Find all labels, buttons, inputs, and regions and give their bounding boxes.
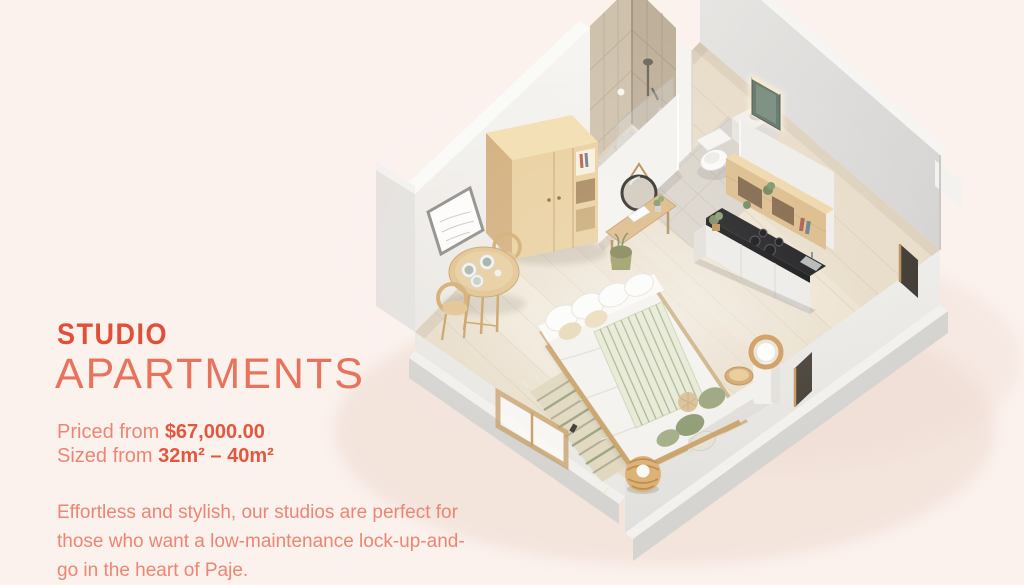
page-subtitle: APARTMENTS (55, 353, 497, 396)
page-title: STUDIO (57, 320, 497, 349)
price-value: $67,000.00 (165, 421, 265, 443)
facts: Priced from $67,000.00 Sized from 32m² –… (57, 420, 497, 468)
description: Effortless and stylish, our studios are … (57, 498, 477, 585)
studio-apartments-slide: STUDIO APARTMENTS Priced from $67,000.00… (0, 0, 1024, 576)
price-label: Priced from (57, 421, 159, 443)
size-label: Sized from (57, 445, 153, 467)
price-fact: Priced from $67,000.00 (57, 420, 497, 444)
info-panel: STUDIO APARTMENTS Priced from $67,000.00… (57, 320, 497, 585)
size-fact: Sized from 32m² – 40m² (57, 444, 497, 468)
size-value: 32m² – 40m² (158, 445, 274, 467)
